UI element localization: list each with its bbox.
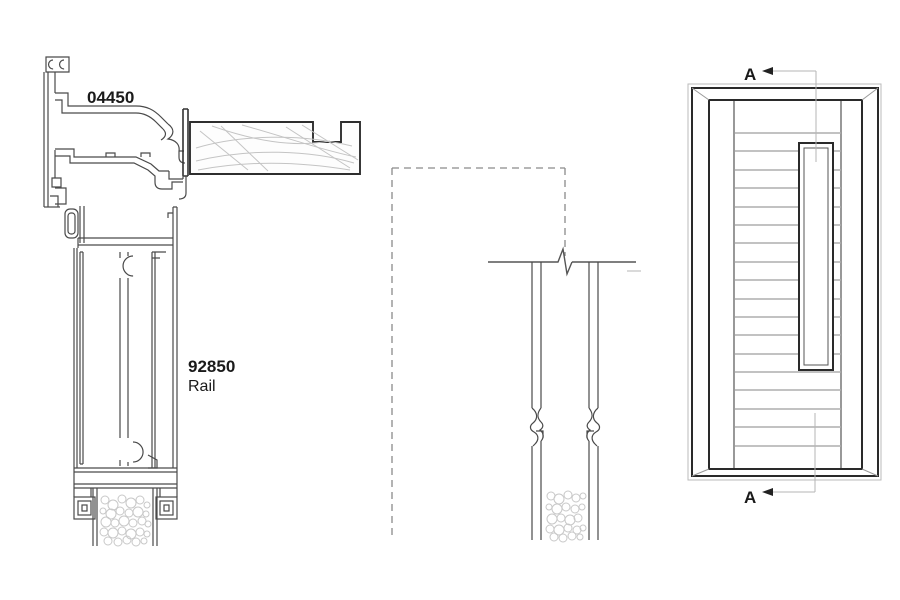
dashed-extent-outline xyxy=(392,168,565,540)
door-elevation xyxy=(688,67,881,496)
section-arrow-top-icon xyxy=(762,67,773,75)
vision-panel xyxy=(799,143,833,370)
technical-drawing-sheet: 04450 92850 Rail A A xyxy=(0,0,900,600)
rail-pebble-infill xyxy=(100,495,151,546)
head-section-detail xyxy=(44,57,360,546)
cut-line-with-break xyxy=(488,249,636,274)
door-frame-outer xyxy=(692,88,878,476)
profile-number-label: 04450 xyxy=(87,88,134,107)
jamb-bar-profile xyxy=(44,57,69,207)
drawing-svg: 04450 92850 Rail A A xyxy=(0,0,900,600)
door-outer-hairline xyxy=(688,84,881,480)
rail-number-label: 92850 xyxy=(188,357,235,376)
door-frame-inner xyxy=(709,100,862,469)
section-label-bottom: A xyxy=(744,488,756,507)
rail-name-label: Rail xyxy=(188,378,216,395)
frame-corner-miters xyxy=(692,88,878,476)
post-pebble-infill xyxy=(546,491,586,542)
middle-broken-section xyxy=(392,168,641,542)
wood-infill-block xyxy=(190,122,360,174)
section-arrow-bottom-icon xyxy=(762,488,773,496)
glazing-stop-bar xyxy=(183,109,188,176)
section-label-top: A xyxy=(744,65,756,84)
profile-04450-lower-arm xyxy=(55,149,186,199)
break-symbol-icon xyxy=(554,249,572,274)
rail-92850-section xyxy=(74,207,177,546)
